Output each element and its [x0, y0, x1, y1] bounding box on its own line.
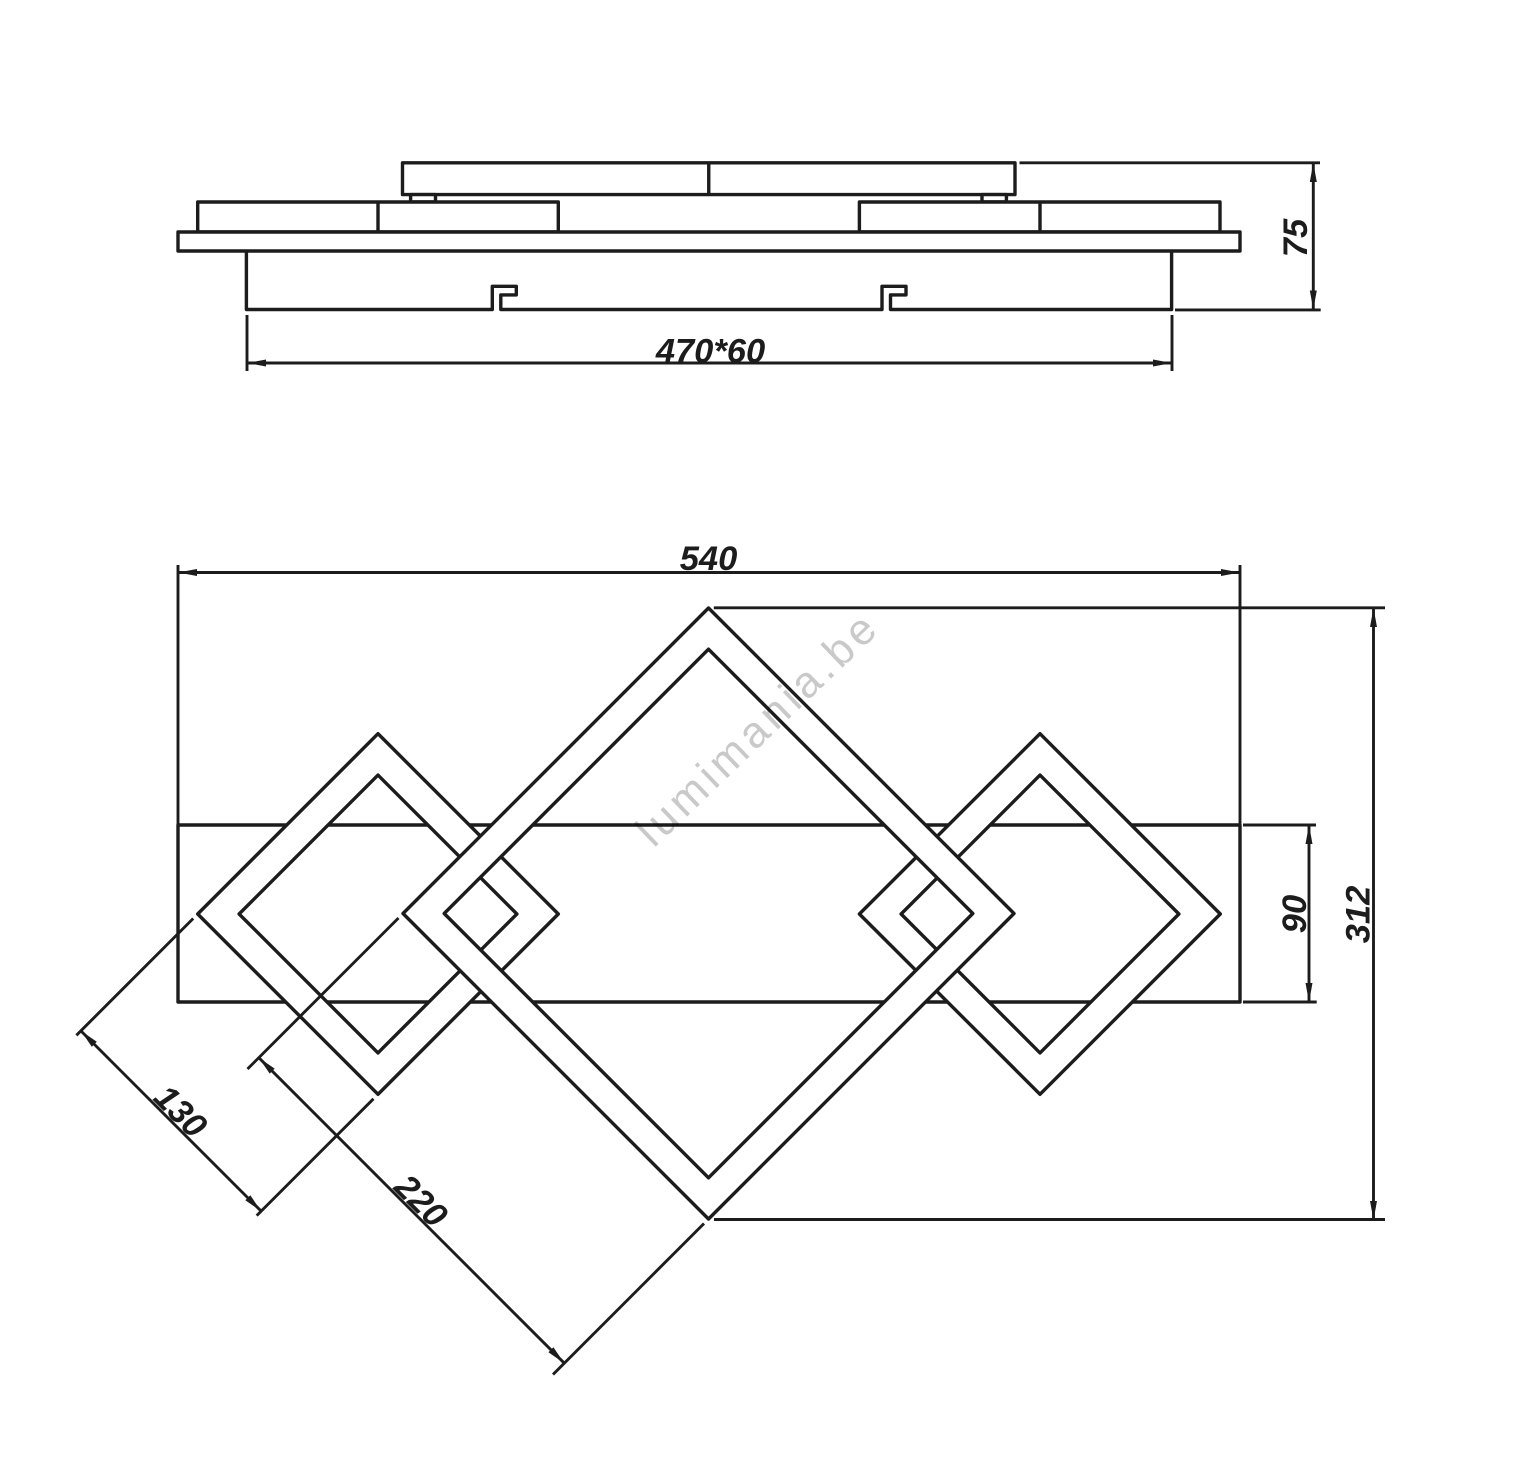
svg-text:75: 75: [1277, 218, 1315, 257]
svg-text:312: 312: [1340, 886, 1378, 944]
svg-text:470*60: 470*60: [655, 333, 765, 371]
svg-text:540: 540: [680, 540, 738, 578]
svg-text:90: 90: [1276, 895, 1314, 933]
